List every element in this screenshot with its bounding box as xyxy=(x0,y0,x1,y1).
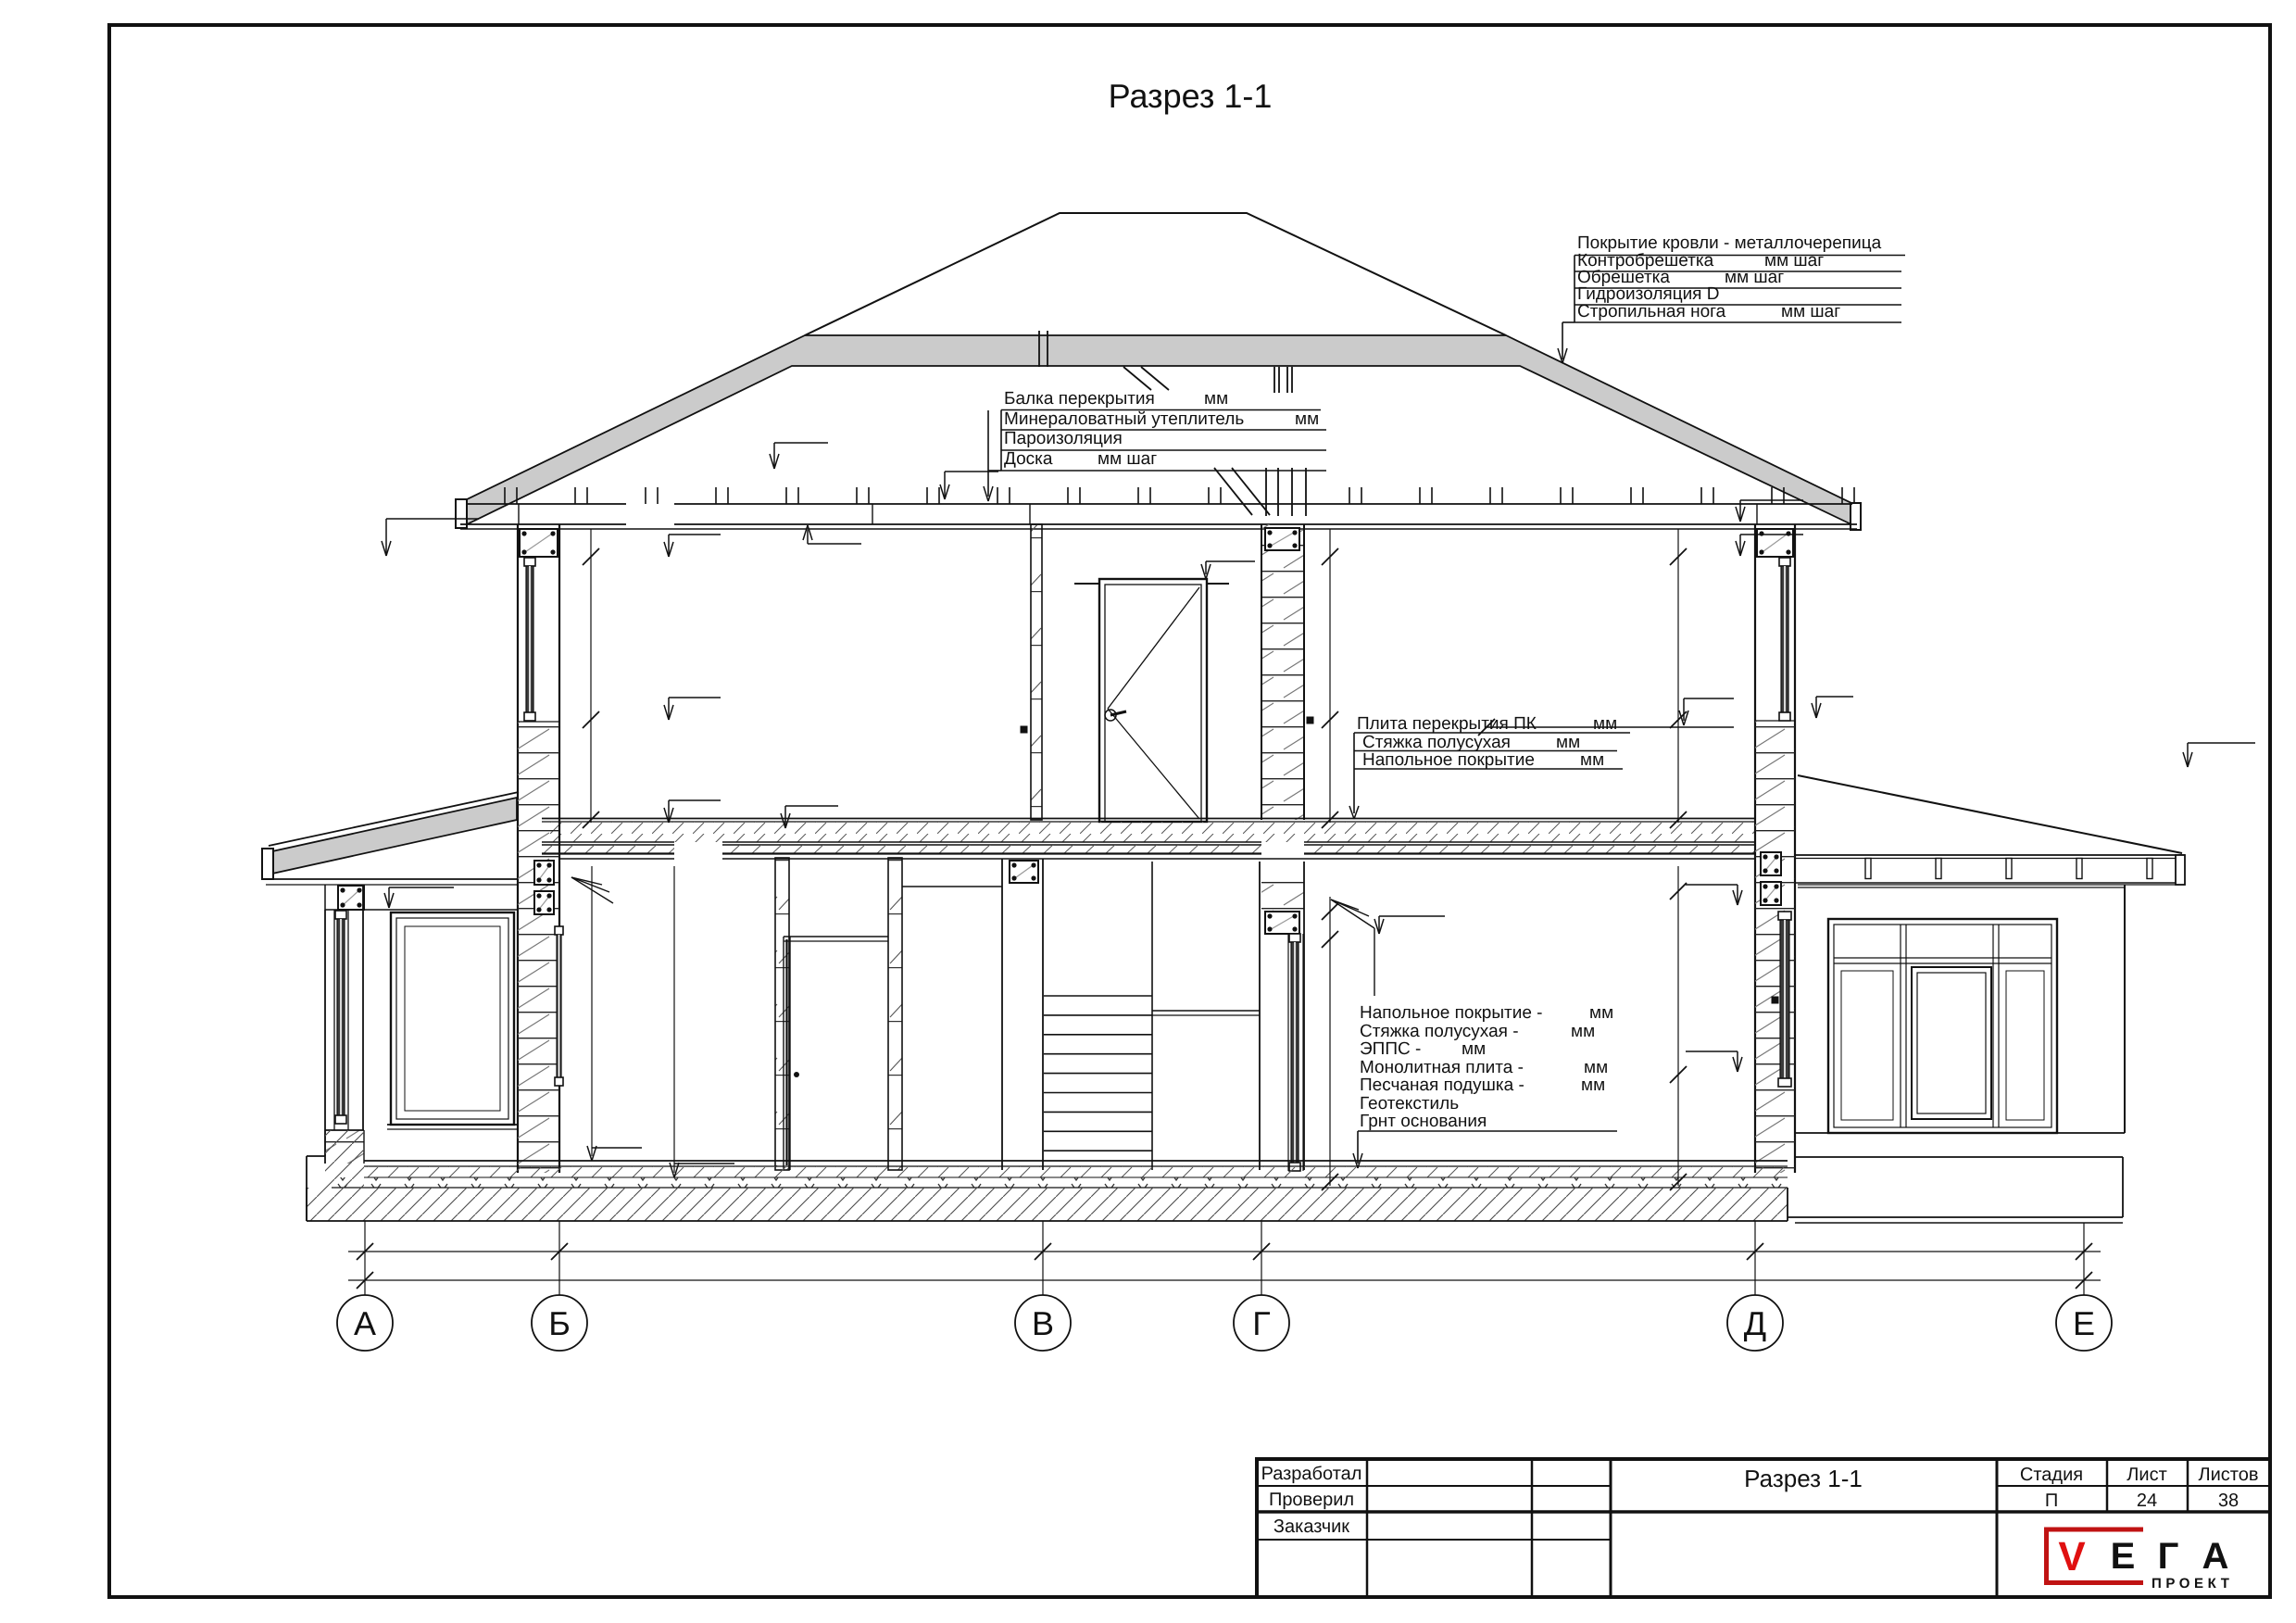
svg-text:Д: Д xyxy=(1744,1304,1766,1342)
svg-text:Листов: Листов xyxy=(2199,1465,2259,1485)
svg-text:Разрез 1-1: Разрез 1-1 xyxy=(1744,1465,1863,1492)
svg-text:Песчаная подушка -: Песчаная подушка - xyxy=(1360,1076,1524,1095)
svg-text:Стадия: Стадия xyxy=(2020,1465,2083,1485)
svg-text:мм: мм xyxy=(1584,1058,1608,1077)
svg-text:Разработал: Разработал xyxy=(1261,1464,1362,1484)
svg-text:Геотекстиль: Геотекстиль xyxy=(1360,1094,1459,1113)
svg-text:мм: мм xyxy=(1593,714,1617,734)
svg-text:мм: мм xyxy=(1571,1022,1595,1041)
svg-text:Стяжка полусухая: Стяжка полусухая xyxy=(1362,733,1511,752)
svg-text:Заказчик: Заказчик xyxy=(1273,1516,1349,1537)
svg-text:ЭППС -: ЭППС - xyxy=(1360,1039,1421,1059)
svg-text:Минераловатный утеплитель: Минераловатный утеплитель xyxy=(1004,409,1244,429)
svg-text:Б: Б xyxy=(548,1304,571,1342)
svg-text:Стяжка полусухая -: Стяжка полусухая - xyxy=(1360,1022,1519,1041)
svg-text:мм: мм xyxy=(1462,1039,1486,1059)
svg-text:ПРОЕКТ: ПРОЕКТ xyxy=(2152,1576,2234,1592)
svg-text:Балка перекрытия: Балка перекрытия xyxy=(1004,389,1155,409)
svg-text:Напольное покрытие -: Напольное покрытие - xyxy=(1360,1003,1543,1023)
svg-text:Е: Е xyxy=(2111,1536,2136,1577)
svg-text:мм: мм xyxy=(1581,1076,1605,1095)
svg-text:мм: мм xyxy=(1204,389,1228,409)
svg-text:Проверил: Проверил xyxy=(1269,1490,1354,1510)
svg-text:Е: Е xyxy=(2073,1304,2095,1342)
svg-text:А: А xyxy=(354,1304,376,1342)
svg-text:мм: мм xyxy=(1556,733,1580,752)
svg-text:П: П xyxy=(2045,1491,2058,1511)
svg-text:В: В xyxy=(1032,1304,1054,1342)
svg-text:Напольное покрытие: Напольное покрытие xyxy=(1362,750,1535,770)
svg-text:мм: мм xyxy=(1589,1003,1613,1023)
svg-text:Монолитная плита -: Монолитная плита - xyxy=(1360,1058,1524,1077)
svg-text:Грнт основания: Грнт основания xyxy=(1360,1112,1487,1131)
svg-text:мм: мм xyxy=(1580,750,1604,770)
svg-text:Г: Г xyxy=(1252,1304,1271,1342)
svg-text:38: 38 xyxy=(2218,1491,2239,1511)
svg-text:Пароизоляция: Пароизоляция xyxy=(1004,429,1123,448)
svg-text:Г: Г xyxy=(2158,1536,2179,1577)
svg-text:мм шаг: мм шаг xyxy=(1725,268,1784,287)
svg-text:мм шаг: мм шаг xyxy=(1098,449,1157,469)
svg-text:Лист: Лист xyxy=(2127,1465,2166,1485)
svg-text:Гидроизоляция D: Гидроизоляция D xyxy=(1577,284,1719,304)
svg-text:Разрез 1-1: Разрез 1-1 xyxy=(1109,77,1273,115)
svg-text:мм: мм xyxy=(1295,409,1319,429)
svg-text:V: V xyxy=(2058,1534,2086,1579)
svg-text:24: 24 xyxy=(2137,1491,2157,1511)
svg-text:Покрытие кровли - металлочереп: Покрытие кровли - металлочерепица xyxy=(1577,233,1882,253)
svg-text:Доска: Доска xyxy=(1004,449,1053,469)
svg-text:Плита перекрытия ПК: Плита перекрытия ПК xyxy=(1357,714,1537,734)
svg-text:А: А xyxy=(2202,1536,2229,1577)
